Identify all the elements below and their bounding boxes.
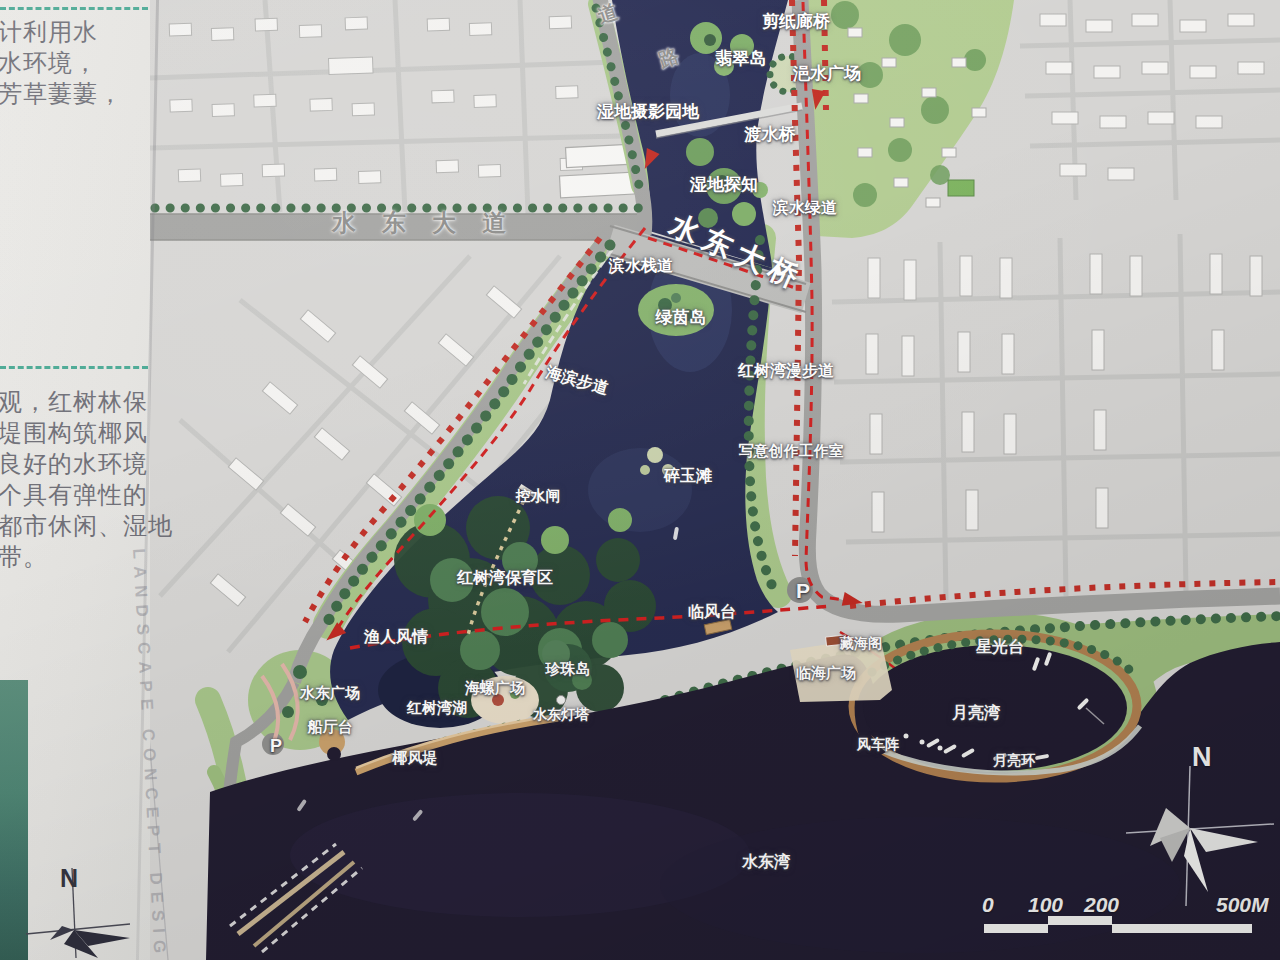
scale-tick: 100 — [1028, 893, 1063, 917]
panel-text-line: 水环境， — [0, 47, 150, 78]
map-artwork — [0, 0, 1280, 960]
scale-tick: 500M — [1216, 893, 1269, 917]
scale-bar: 0 100 200 500M — [972, 893, 1272, 943]
panel-text-line: 堤围构筑椰风 — [0, 417, 150, 448]
compass-right-n-label: N — [1192, 742, 1212, 773]
left-description-panel: 计利用水水环境，芳草萋萋， 观，红树林保堤围构筑椰风良好的水环境个具有弹性的都市… — [0, 0, 150, 960]
panel-body-text: 观，红树林保堤围构筑椰风良好的水环境个具有弹性的都市休闲、湿地带。 — [0, 386, 150, 572]
panel-text-line: 计利用水 — [0, 16, 150, 47]
teal-dashed-divider — [0, 7, 148, 10]
panel-text-line: 良好的水环境 — [0, 448, 150, 479]
scale-tick: 200 — [1084, 893, 1119, 917]
scale-tick: 0 — [982, 893, 994, 917]
panel-text-line: 个具有弹性的 — [0, 479, 150, 510]
panel-text-line: 观，红树林保 — [0, 386, 150, 417]
compass-left: N — [18, 858, 138, 960]
teal-dashed-divider — [0, 366, 148, 369]
panel-intro-text: 计利用水水环境，芳草萋萋， — [0, 16, 150, 109]
panel-text-line: 都市休闲、湿地 — [0, 510, 150, 541]
map-poster-photo: 道路剪纸廊桥翡翠岛浥水广场湿地摄影园地渡水桥湿地探知滨水绿道水东大道水东大桥滨水… — [0, 0, 1280, 960]
panel-text-line: 芳草萋萋， — [0, 78, 150, 109]
compass-left-n-label: N — [60, 864, 78, 893]
